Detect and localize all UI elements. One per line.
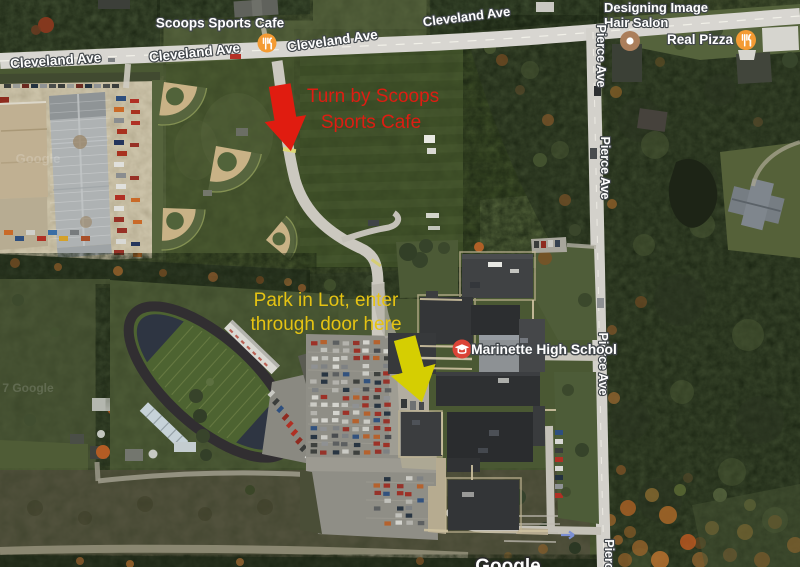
svg-text:Pierce Ave: Pierce Ave — [598, 136, 612, 199]
svg-text:Real Pizza: Real Pizza — [667, 32, 734, 47]
svg-text:Pierce Ave: Pierce Ave — [594, 24, 608, 87]
svg-text:Designing Image: Designing Image — [604, 0, 708, 15]
svg-text:7 Google: 7 Google — [2, 381, 54, 395]
svg-text:Marinette High School: Marinette High School — [471, 342, 617, 357]
svg-text:Google: Google — [16, 151, 61, 166]
svg-text:Scoops Sports Cafe: Scoops Sports Cafe — [156, 16, 285, 31]
svg-text:Park in Lot, enter: Park in Lot, enter — [254, 290, 399, 311]
svg-text:Turn by Scoops: Turn by Scoops — [307, 86, 439, 107]
svg-text:Sports Cafe: Sports Cafe — [321, 112, 421, 133]
svg-text:Pierce: Pierce — [602, 539, 616, 567]
svg-text:Hair Salon: Hair Salon — [604, 15, 668, 30]
svg-text:Google: Google — [475, 556, 540, 567]
svg-text:through door here: through door here — [250, 314, 401, 335]
